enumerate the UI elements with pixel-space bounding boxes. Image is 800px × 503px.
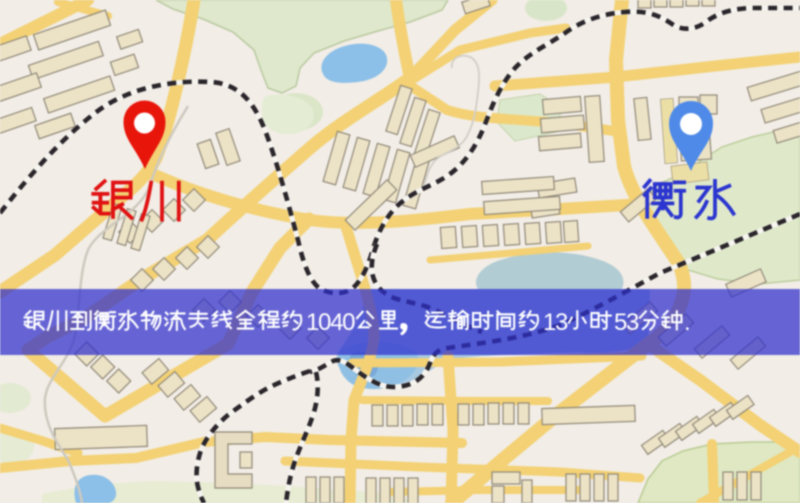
svg-text:1040: 1040 — [306, 309, 355, 336]
svg-text:53: 53 — [614, 309, 639, 336]
svg-text:13: 13 — [543, 309, 568, 336]
svg-text:.: . — [684, 309, 691, 336]
